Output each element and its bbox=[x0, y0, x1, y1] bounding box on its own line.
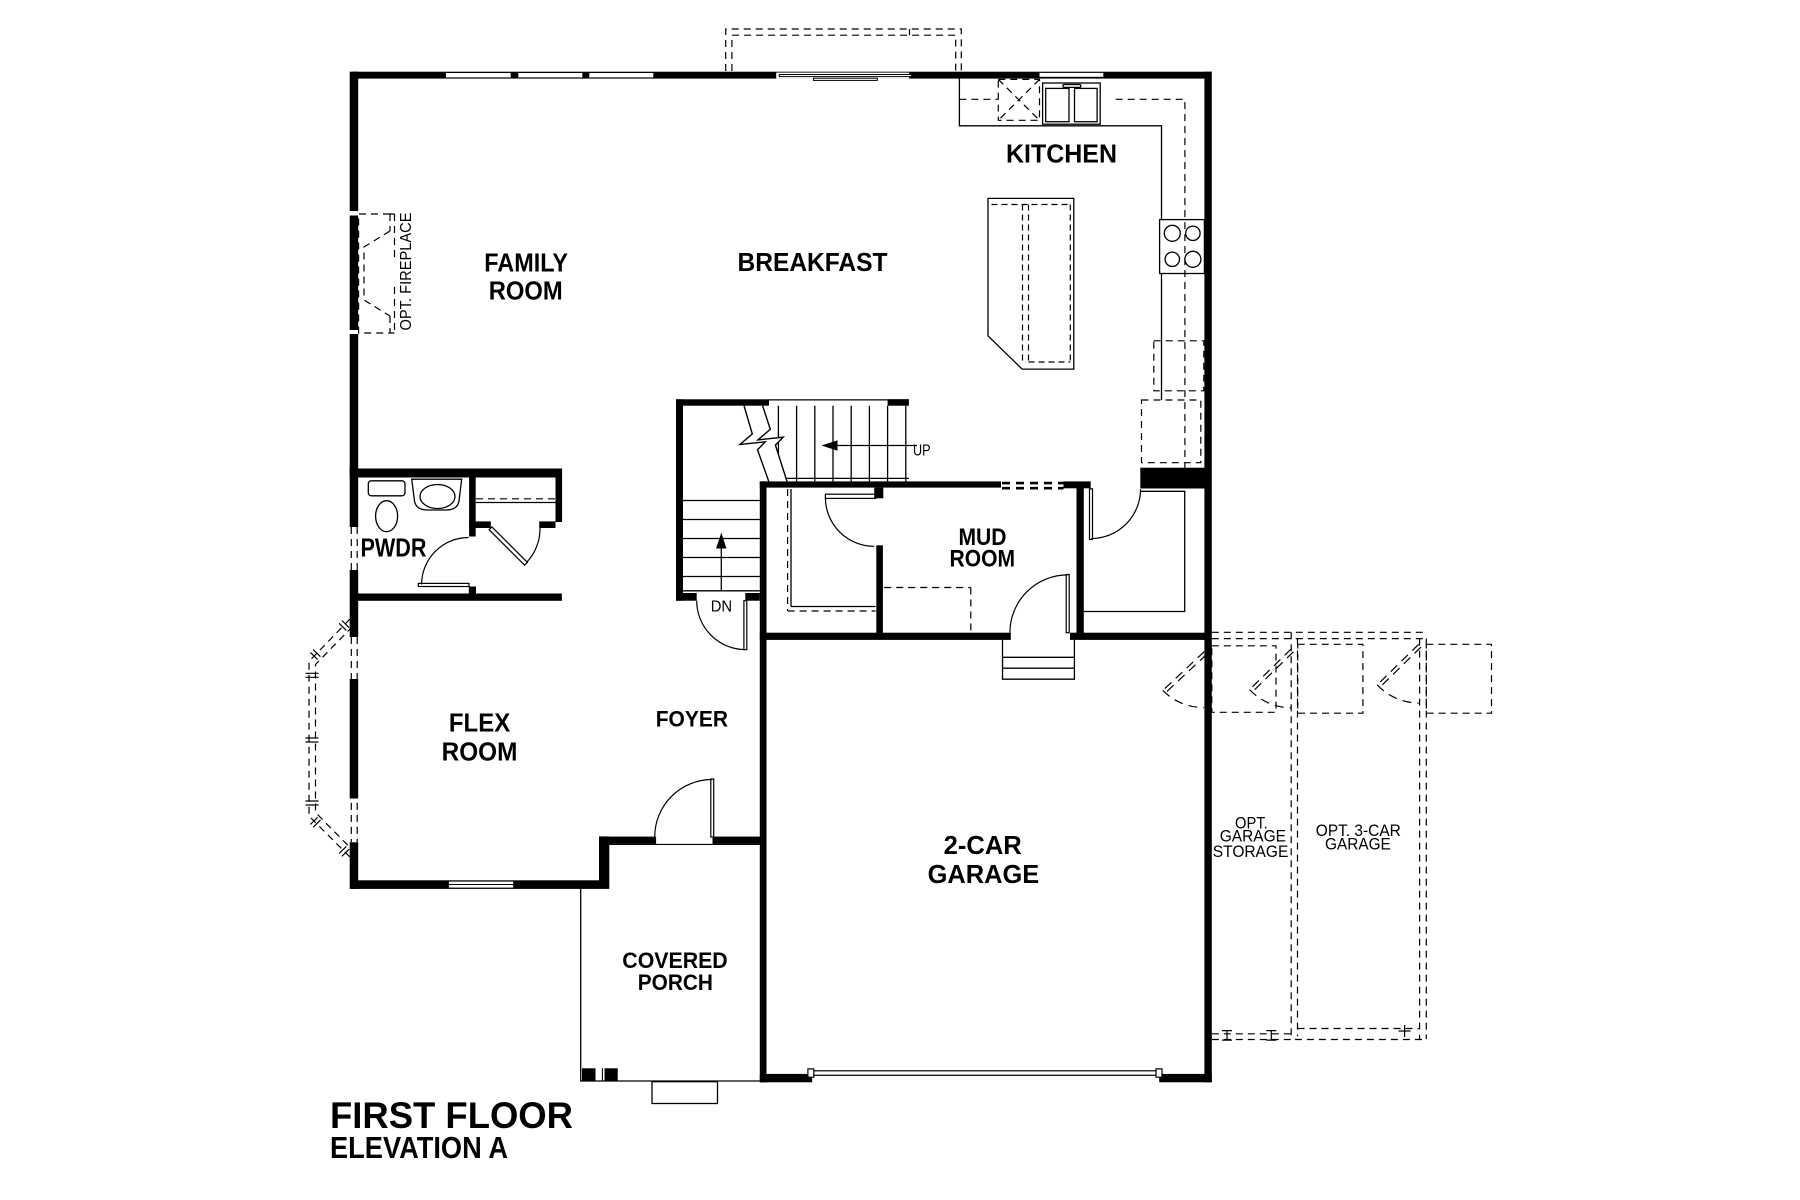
svg-text:FAMILY: FAMILY bbox=[484, 249, 568, 277]
svg-text:ROOM: ROOM bbox=[950, 546, 1016, 573]
svg-text:OPT. FIREPLACE: OPT. FIREPLACE bbox=[398, 213, 415, 331]
svg-text:ROOM: ROOM bbox=[489, 277, 563, 305]
svg-text:UP: UP bbox=[913, 443, 931, 460]
svg-text:FOYER: FOYER bbox=[656, 706, 728, 731]
svg-text:BREAKFAST: BREAKFAST bbox=[738, 249, 888, 277]
svg-text:FLEX: FLEX bbox=[449, 709, 510, 737]
svg-text:DN: DN bbox=[711, 598, 732, 615]
svg-text:FIRST FLOOR: FIRST FLOOR bbox=[330, 1095, 573, 1136]
svg-text:ELEVATION A: ELEVATION A bbox=[330, 1131, 508, 1165]
svg-text:KITCHEN: KITCHEN bbox=[1006, 141, 1117, 169]
svg-text:PORCH: PORCH bbox=[638, 970, 713, 995]
svg-text:STORAGE: STORAGE bbox=[1213, 843, 1289, 861]
svg-text:PWDR: PWDR bbox=[361, 533, 427, 563]
svg-text:GARAGE: GARAGE bbox=[1325, 836, 1391, 854]
svg-text:2-CAR: 2-CAR bbox=[944, 830, 1022, 860]
svg-text:GARAGE: GARAGE bbox=[928, 859, 1040, 889]
svg-text:ROOM: ROOM bbox=[442, 739, 518, 767]
